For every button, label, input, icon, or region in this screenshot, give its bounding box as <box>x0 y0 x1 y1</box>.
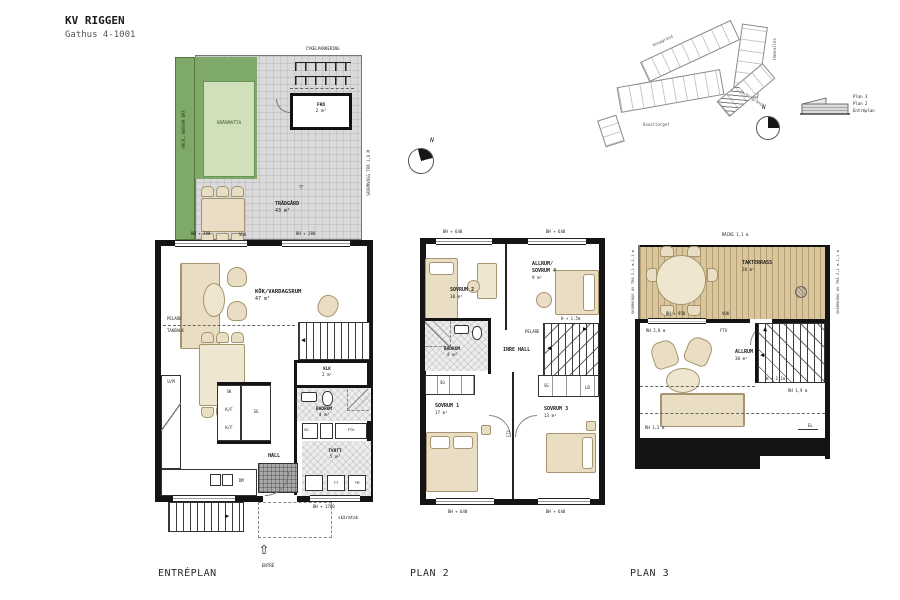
window <box>648 318 706 324</box>
entreplan-drawing: HÄCK, ANSVAR BRF GRÄSMATTA CYKELPARKERIN… <box>155 55 377 600</box>
lawn <box>203 81 255 177</box>
room-height-label: RH 1,2 m <box>645 425 664 430</box>
window <box>175 240 247 247</box>
garden-room-label: TRÄDGÅRD 43 m² <box>275 201 299 215</box>
armchair <box>682 334 715 368</box>
cabinet-label-sk: SK <box>217 389 241 394</box>
entreplan-north-letter: N <box>430 136 434 145</box>
skarmtak-label: skärmtak <box>338 515 358 521</box>
window-height-label: BH + 280 <box>296 231 315 236</box>
dining-chair <box>201 332 214 343</box>
entre-label: ENTRÉ <box>253 563 283 569</box>
railing-label: RÄCKE 1,1 m <box>685 232 785 237</box>
sovrum2-name: SOVRUM 2 <box>450 287 474 293</box>
window <box>282 240 350 247</box>
coffee-table-oval <box>666 368 700 393</box>
pelare-label: PELARE <box>525 329 539 334</box>
mech-box <box>320 423 333 439</box>
terrace-chair <box>660 246 674 257</box>
lawn-label: GRÄSMATTA <box>199 121 259 127</box>
street-label-top: Knopgränd <box>652 34 674 48</box>
plan2-drawing: BH + 640 BH + 640 SOVRUM 2 10 m² ALLRUM/… <box>420 225 615 585</box>
window-height-label: BH + 640 <box>546 509 565 514</box>
coffee-table <box>203 283 225 317</box>
section-label-plan2: Plan 2 <box>853 101 867 106</box>
window-height-label: BH + 640 <box>443 229 462 234</box>
inner-wall <box>512 372 514 499</box>
nightstand <box>586 421 596 431</box>
site-north-letter: N <box>762 104 766 112</box>
klk-area: 2 m² <box>322 372 332 377</box>
dining-chair <box>231 332 244 343</box>
window-height-label: BH + 280 <box>191 231 210 236</box>
sofa <box>660 393 745 427</box>
takterrass-area: 20 m² <box>742 267 755 272</box>
plan-title-plan3: PLAN 3 <box>630 568 669 579</box>
entre-arrow-icon: ⇧ <box>259 538 269 561</box>
room-label-sovrum3: SOVRUM 3 13 m² <box>544 406 568 420</box>
plan3-outer-wall-right <box>825 245 830 459</box>
screen-wall-label: SKÄRMVÄGG AV TRÄ 2,1 m-1,1 m <box>835 250 840 314</box>
room-label-badrum2: BADRUM 4 m² <box>430 347 474 359</box>
room-height-label: RH 1,9 m <box>788 388 807 393</box>
dining-chair <box>216 332 229 343</box>
sovrum1-area: 17 m² <box>435 410 448 415</box>
toilet <box>322 391 333 406</box>
sovrum4-area: 9 m² <box>532 275 542 280</box>
site-compass-icon <box>756 116 780 140</box>
height-label: H + 1,1m <box>766 376 785 381</box>
frd-area: 2 m² <box>316 109 327 114</box>
pelare-label: PELARE <box>167 316 181 321</box>
window <box>538 498 590 505</box>
site-building-north <box>640 20 740 82</box>
room-label-sovrum4: ALLRUM/ SOVRUM 4 9 m² <box>532 261 556 281</box>
pillow <box>453 436 473 449</box>
bathroom-sink <box>454 325 469 334</box>
stair-direction-arrow: ◀ <box>760 352 764 359</box>
sovrum4-name2: SOVRUM 4 <box>532 268 556 274</box>
street-label-right: Hamnallén <box>772 38 777 60</box>
badrum2-area: 4 m² <box>447 353 458 358</box>
window-height-label: BH + 640 <box>546 229 565 234</box>
site-building-small <box>597 115 625 148</box>
floor-drain-icon <box>795 286 807 298</box>
cabinet-label-um: U/M <box>161 379 181 384</box>
armchair <box>227 267 247 287</box>
room-label-sovrum1: SOVRUM 1 17 m² <box>435 403 459 417</box>
room-label-takterrass: TAKTERRASS 20 m² <box>742 260 772 274</box>
tvatt-area: 5 m² <box>330 455 341 460</box>
porch-skarmtak <box>258 502 332 538</box>
plan-title-entreplan: ENTRÉPLAN <box>158 568 217 579</box>
section-label-entreplan: Entréplan <box>853 108 875 113</box>
el-label: EL <box>808 423 813 428</box>
tree-symbol: ▽ <box>299 183 303 192</box>
klk-name: KLK <box>323 366 331 371</box>
section-label-plan3: Plan 3 <box>853 94 867 99</box>
room-height-label: RH 2,8 m <box>646 328 665 333</box>
room-label-hall: HALL <box>268 453 280 460</box>
screen-wall-label: SKÄRMVÄGG AV TRÄ 2,1 m-1,1 m <box>630 250 635 314</box>
wardrobe-row <box>425 375 475 395</box>
wardrobe-label-sg: SG <box>544 383 549 388</box>
floorplan-sheet: KV RIGGEN Gathus 4-1001 Knopgränd Hamnal… <box>0 0 900 600</box>
window <box>436 498 494 505</box>
plan-title-plan2: PLAN 2 <box>410 568 449 579</box>
toilet <box>472 326 482 340</box>
room-label-sovrum2: SOVRUM 2 10 m² <box>450 287 474 301</box>
bike-area-boundary <box>290 88 354 89</box>
section-key-icon <box>800 92 850 120</box>
armchair <box>536 292 552 308</box>
terrace-chair <box>687 246 701 257</box>
ceiling-height-line <box>640 413 825 414</box>
site-plan: Knopgränd Hamnallén Tackelgränd Kanaltor… <box>595 15 885 155</box>
sovrum4-name1: ALLRUM/ <box>532 261 553 267</box>
el-line <box>798 429 818 430</box>
allrum-name: ALLRUM <box>735 349 753 355</box>
terrace-chair <box>687 305 701 316</box>
stair-direction-arrow: ▶ <box>583 326 587 333</box>
vuk-label: VUK <box>239 232 246 237</box>
hedge-label: HÄCK, ANSVAR BRF <box>181 110 186 149</box>
island-cap <box>217 441 271 444</box>
inner-wall <box>488 318 491 374</box>
badrum2-name: BADRUM <box>444 347 460 352</box>
dining-chair <box>201 407 214 418</box>
room-label-kok: KÖK/VARDAGSRUM 47 m² <box>255 289 301 304</box>
armchair <box>227 301 247 321</box>
attic-wall-band <box>635 438 830 456</box>
shower-corner <box>425 321 451 347</box>
dishwasher-label: DM <box>239 478 244 483</box>
window-height-label: BH + 640 <box>448 509 467 514</box>
entry-door-opening <box>263 495 297 502</box>
room-label-inre-hall: INRE HALL <box>503 347 530 354</box>
pillow <box>582 437 593 469</box>
pillow <box>430 436 450 449</box>
bike-rack-icon <box>295 62 351 71</box>
allrum-area: 30 m² <box>735 356 748 361</box>
window <box>173 495 235 502</box>
street-label-square: Kanaltorget <box>643 122 670 127</box>
stair2 <box>543 323 599 379</box>
bike-parking-label: CYKELPARKERING <box>280 46 365 51</box>
sink <box>222 474 233 486</box>
window-height-label: BH + 950 <box>666 311 685 316</box>
garden-table <box>201 198 245 232</box>
terrace-screen-wall <box>638 245 640 319</box>
window <box>528 238 586 245</box>
terrace-table-round <box>656 255 706 305</box>
garden-chair <box>201 186 214 197</box>
cabinet-label-kf: K/F <box>217 425 241 430</box>
sink <box>210 474 221 486</box>
sovrum2-area: 10 m² <box>450 294 463 299</box>
sovrum1-name: SOVRUM 1 <box>435 403 459 409</box>
badrum-area: 4 m² <box>319 413 330 418</box>
desk <box>477 263 497 299</box>
stair-to-plan2 <box>298 322 370 360</box>
outdoor-stair <box>168 502 244 532</box>
bike-rack-icon <box>295 76 351 85</box>
stair-direction-arrow: ◀ <box>547 345 551 352</box>
mech-label-ftx: FTX <box>335 427 367 432</box>
ceiling-height-line <box>640 386 755 387</box>
sovrum3-name: SOVRUM 3 <box>544 406 568 412</box>
attic-wall-block <box>635 456 760 469</box>
cabinet-label-sg: SG <box>241 409 271 414</box>
shower-corner <box>347 389 369 411</box>
laundry-cabinet <box>305 475 323 491</box>
dryer-label: TT <box>327 480 345 485</box>
wardrobe-label-lb: LB <box>585 385 590 390</box>
nightstand <box>481 425 491 435</box>
terrace-chair <box>707 268 718 282</box>
inner-wall <box>294 360 370 363</box>
cabinet-label-kf: K/F <box>217 407 241 412</box>
kok-name: KÖK/VARDAGSRUM <box>255 289 301 295</box>
washer-label: TM <box>348 480 366 485</box>
room-label-allrum: ALLRUM 30 m² <box>735 349 753 363</box>
garden-chair <box>231 186 244 197</box>
bathroom-sink <box>301 392 317 402</box>
room-label-tvatt: TVÄTT 5 m² <box>305 449 365 461</box>
takbalk-label: TAKBALK <box>167 328 184 333</box>
pillow <box>429 262 454 275</box>
entreplan-compass-icon <box>405 145 437 177</box>
frd-label: FRD 2 m² <box>305 103 337 115</box>
height-label: H + 1,5m <box>561 316 580 321</box>
ftx-label: FTX <box>720 328 727 333</box>
window <box>436 238 492 245</box>
stair-direction-arrow: ◀ <box>301 337 305 344</box>
garden-screen-label: SKÄRMVÄGG TRÄ 1,8 M <box>366 150 371 196</box>
sovrum3-area: 13 m² <box>544 413 557 418</box>
cabinet-diagonal <box>161 403 181 431</box>
frd-name: FRD <box>317 103 325 108</box>
room-label-badrum: BADRUM 4 m² <box>301 407 347 419</box>
pillow <box>583 274 595 311</box>
kok-area: 47 m² <box>255 296 270 302</box>
garden-chair <box>216 186 229 197</box>
ftx-label: FTX <box>506 430 511 437</box>
vuk-label: VUK <box>722 311 729 316</box>
stair-direction-arrow: ▶ <box>225 513 229 520</box>
armchair <box>648 338 680 371</box>
sheet-subtitle: Gathus 4-1001 <box>65 29 135 41</box>
stair-direction-arrow: ▲ <box>763 326 767 333</box>
site-building-south <box>617 69 725 113</box>
mech-label-sg: SG <box>304 427 309 432</box>
tradgard-name: TRÄDGÅRD <box>275 201 299 207</box>
inner-wall <box>505 244 507 330</box>
wardrobe-label-sg: SG <box>440 380 445 385</box>
window <box>310 495 360 502</box>
takbalk-line <box>163 325 295 326</box>
tradgard-area: 43 m² <box>275 208 290 214</box>
plan3-drawing: RÄCKE 1,1 m SKÄRMVÄGG AV TRÄ 2,1 m-1,1 m… <box>630 228 845 583</box>
tvatt-name: TVÄTT <box>328 449 342 454</box>
room-label-klk: KLK 2 m² <box>307 366 347 377</box>
takterrass-name: TAKTERRASS <box>742 260 772 266</box>
sheet-title: KV RIGGEN <box>65 14 125 29</box>
badrum-name: BADRUM <box>316 407 332 412</box>
